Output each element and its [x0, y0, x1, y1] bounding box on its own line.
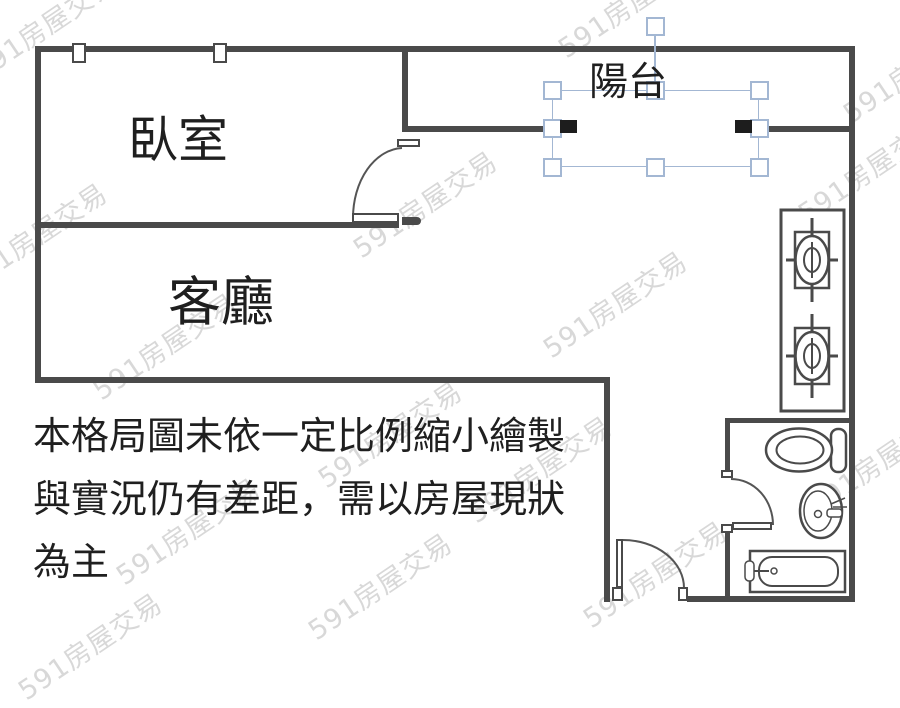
- stove-icon: [781, 210, 844, 411]
- disclaimer-line: 為主: [33, 531, 565, 594]
- disclaimer-line: 本格局圖未依一定比例縮小繪製: [33, 405, 565, 468]
- selection-handle-top-left[interactable]: [543, 81, 562, 100]
- room-label-bedroom: 臥室: [128, 115, 228, 165]
- entry-door-jamb-left: [612, 587, 623, 601]
- selection-handle-bottom-left[interactable]: [543, 158, 562, 177]
- selection-handle-middle-right[interactable]: [750, 119, 769, 138]
- balcony-opening-cap-right: [735, 120, 752, 133]
- bathroom-door-arc: [731, 479, 773, 525]
- bedroom-door-hinge-cap: [397, 139, 420, 147]
- bedroom-door-arc: [353, 148, 402, 218]
- room-label-living: 客廳: [168, 276, 274, 329]
- disclaimer-line: 與實況仍有差距，需以房屋現狀: [33, 468, 565, 531]
- bathroom-door-hinge-cap: [721, 470, 733, 478]
- selection-handle-bottom-right[interactable]: [750, 158, 769, 177]
- floorplan-canvas: 591房屋交易 591房屋交易 591房屋交易 591房屋交易 591房屋交易 …: [0, 0, 900, 649]
- entry-door-arc: [623, 540, 684, 588]
- bathtub-icon: [745, 551, 845, 592]
- toilet-icon: [766, 429, 846, 473]
- sink-icon: [800, 484, 847, 538]
- selection-handle-bottom-middle[interactable]: [646, 158, 665, 177]
- bedroom-door-leaf: [352, 213, 399, 223]
- entry-door-jamb-right: [678, 587, 688, 601]
- disclaimer-text: 本格局圖未依一定比例縮小繪製 與實況仍有差距，需以房屋現狀 為主: [33, 405, 565, 594]
- bathroom-door-leaf: [732, 522, 772, 530]
- entry-door-leaf: [616, 539, 623, 588]
- window-icon: [213, 43, 227, 63]
- room-label-balcony[interactable]: 陽台: [589, 63, 667, 102]
- balcony-opening-cap-left: [560, 120, 577, 133]
- window-icon: [72, 43, 86, 63]
- selection-handle-top-right[interactable]: [750, 81, 769, 100]
- selection-rotation-handle[interactable]: [646, 17, 665, 36]
